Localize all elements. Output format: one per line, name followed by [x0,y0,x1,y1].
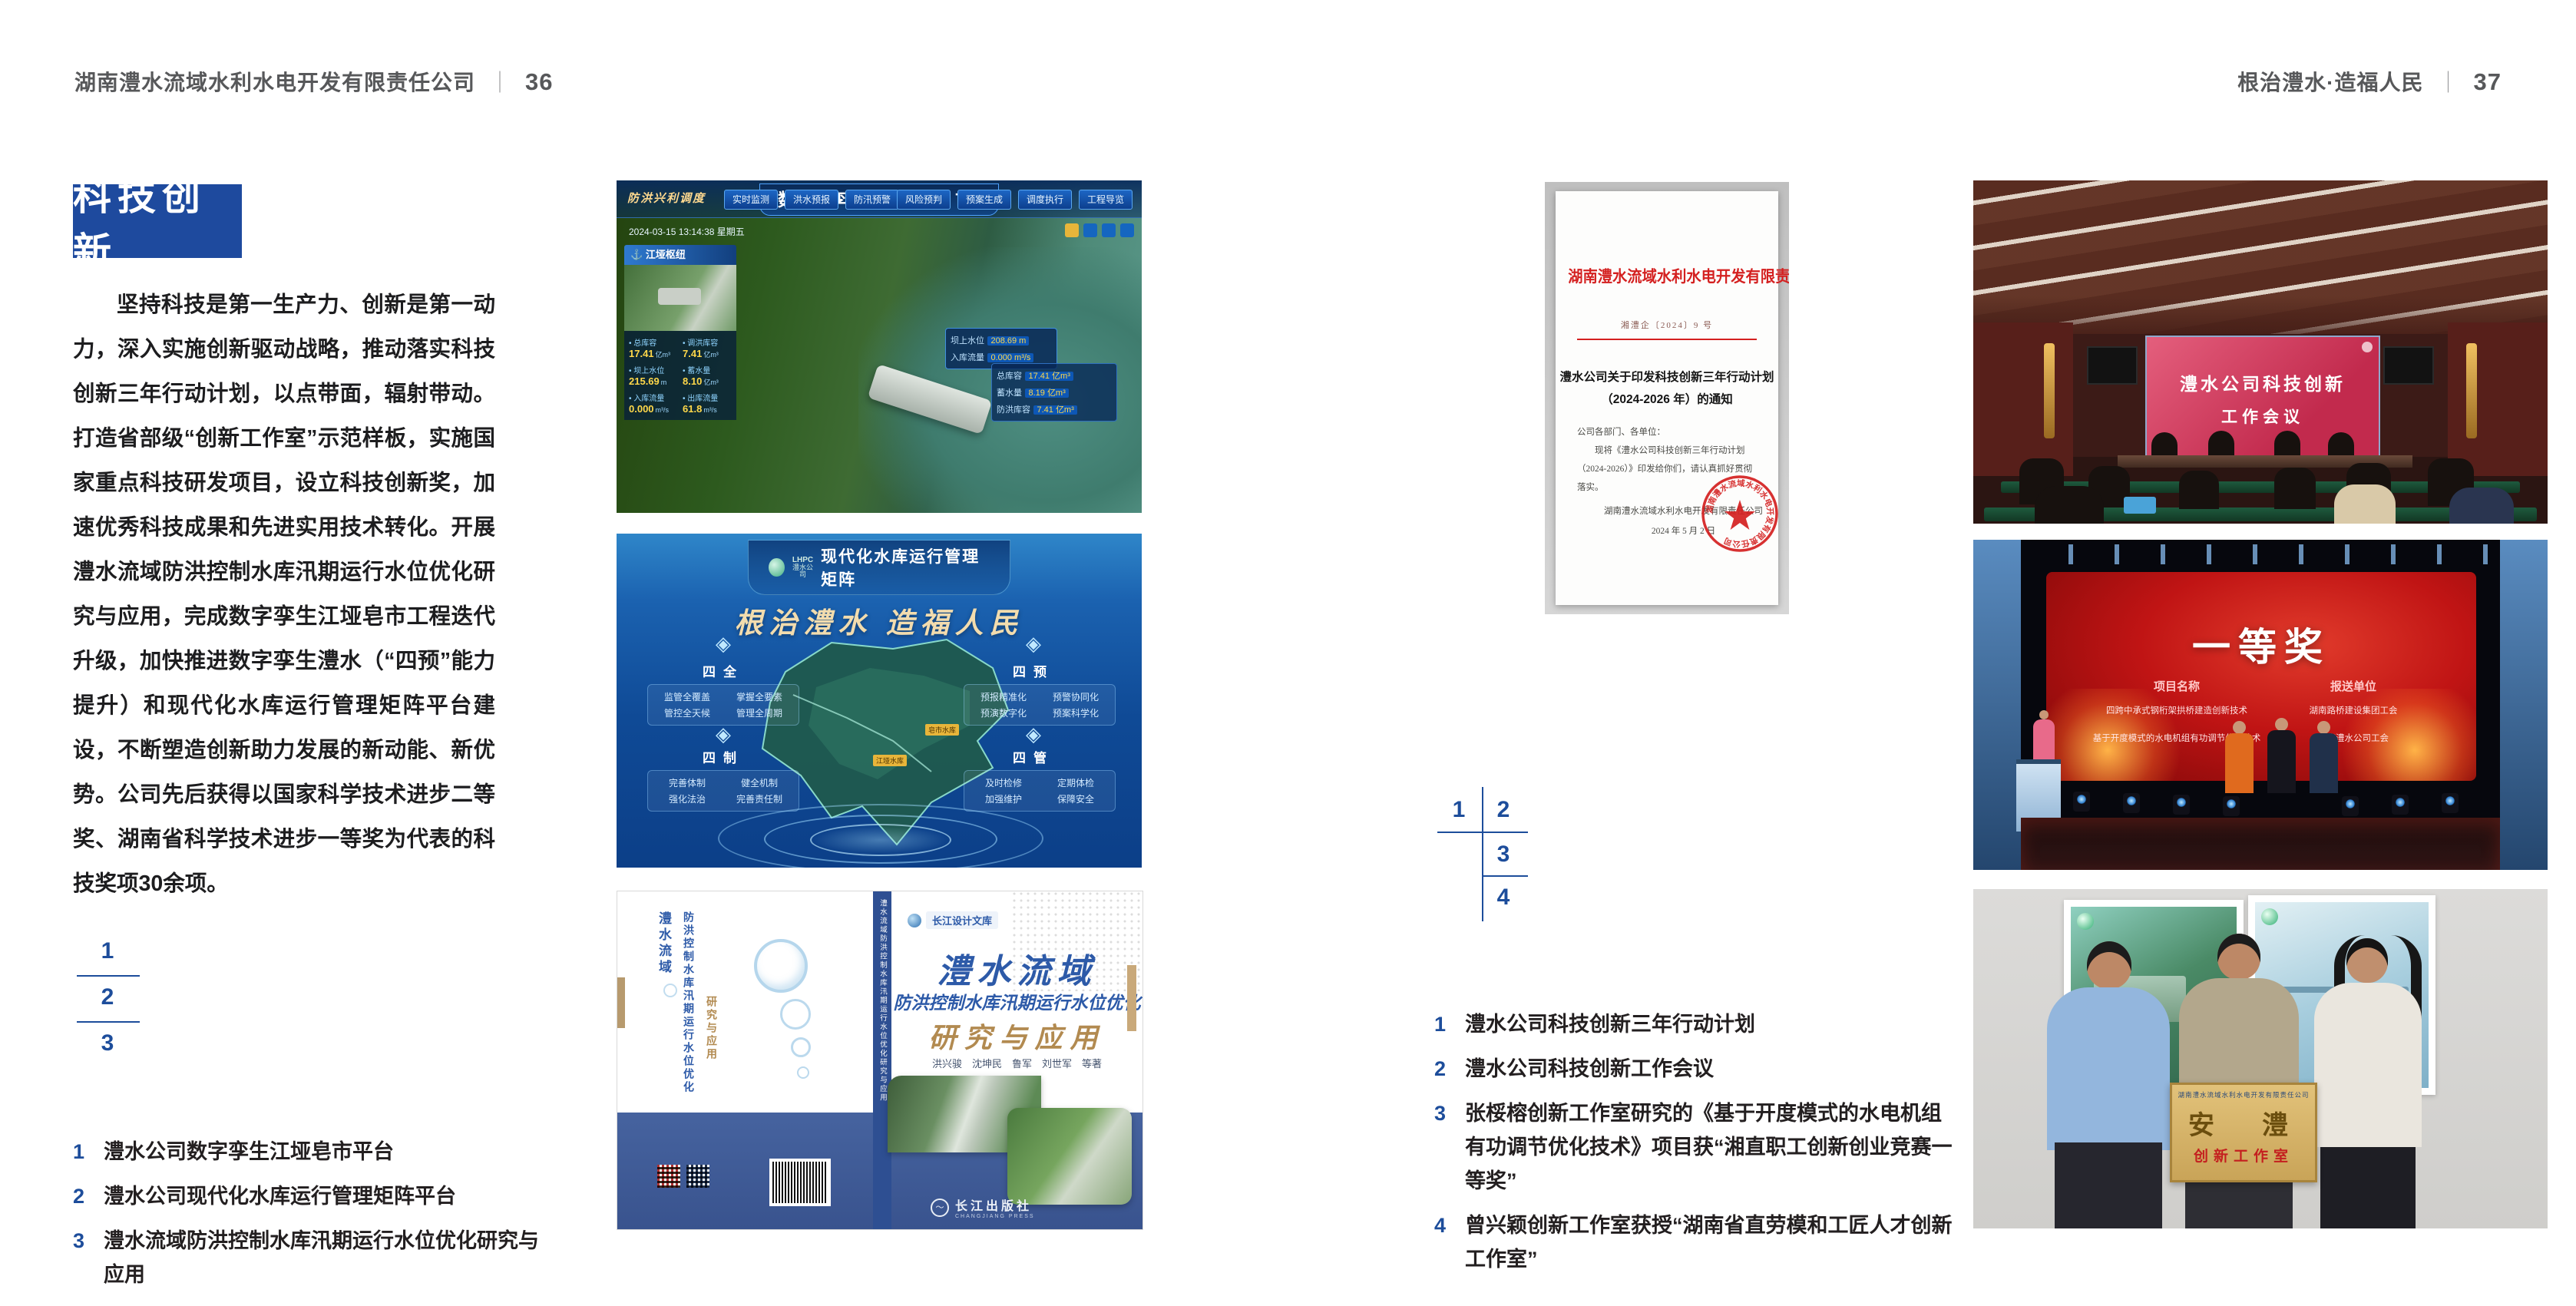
publisher-block: 〜 长江出版社 CHANGJIANG PRESS [931,1195,1035,1219]
photo-innovation-meeting: 澧水公司科技创新 工作会议 [1973,180,2548,524]
bubble-decoration [791,1037,811,1057]
panelist-silhouette [2208,431,2234,455]
map-label-jiangya: 江垭水库 [873,755,907,766]
document-sheet: 湖南澧水流域水利水电开发有限责任公司文件 湘澧企〔2024〕9 号 澧水公司关于… [1556,191,1778,605]
ripple-core [810,824,951,856]
document-salutation: 公司各部门、各单位： [1577,423,1760,441]
book-title: 澧水流域 [891,944,1143,993]
hub-stats-grid: • 总库容17.41亿m³ • 调洪库容7.41亿m³ • 坝上水位215.69… [624,331,736,420]
recipient-head [2233,721,2246,734]
audience-silhouette [2274,468,2316,509]
slogan: 根治澧水·造福人民 [2237,71,2423,94]
press-logo-icon [908,914,921,927]
right-running-head: 根治澧水·造福人民｜37 [2237,66,2502,97]
document-title: 澧水公司关于印发科技创新三年行动计划 （2024-2026 年）的通知 [1556,366,1778,412]
quad-item: 强化法治 [654,792,720,805]
quad-item: 预演数字化 [971,706,1037,719]
anchor-icon: ⚓ [630,249,646,260]
seal-star [1724,500,1755,530]
back-title-1: 澧水流域 [654,911,673,1142]
barcode [769,1159,831,1206]
panel-stat-label: 蓄水量 [997,388,1022,398]
section-badge: 科技创新 [73,184,242,258]
qr-code [686,1165,709,1188]
person-blue-shirt [2047,987,2170,1150]
panelist-silhouette [2328,432,2354,455]
map-label-zaoshi: 皂市水库 [925,724,959,736]
panel-stat-label: 防洪库容 [997,405,1030,415]
figure-index-4: 4 [1486,884,1520,911]
stage-light-fixture [2223,796,2240,816]
caption-number: 4 [1434,1208,1465,1276]
tooltip-label: 坝上水位 [951,336,984,346]
quad-item: 健全机制 [726,776,792,789]
quad-item: 掌握全要素 [726,690,792,703]
dashboard-tabs-right: 风险预判 预案生成 调度执行 工程导览 [897,190,1133,210]
tab-project-tour[interactable]: 工程导览 [1079,190,1133,210]
tooltip-label: 入库流量 [951,353,984,362]
left-running-head: 湖南澧水流域水利水电开发有限责任公司｜36 [74,66,554,97]
quad-item: 预案科学化 [1043,706,1109,719]
quad-item: 完善体制 [654,776,720,789]
plaque-title: 安 澧 [2172,1104,2315,1142]
caption-text: 曾兴颖创新工作室获授“湖南省直劳模和工匠人才创新工作室” [1465,1208,1964,1276]
caption-text: 澧水公司现代化水库运行管理矩阵平台 [104,1179,456,1213]
quadrant-icon: ◈ [673,632,773,656]
panel-stat-value: 7.41 亿m³ [1033,405,1076,415]
quad-item: 管理全周期 [726,706,792,719]
studio-plaque: 湖南澧水流域水利水电开发有限责任公司 安 澧 创新工作室 [2170,1083,2317,1182]
back-accent-bar [617,977,625,1028]
right-caption-list: 1 澧水公司科技创新三年行动计划 2 澧水公司科技创新工作会议 3 张桵榕创新工… [1434,1007,1964,1287]
back-title-2: 防洪控制水库汛期运行水位优化 [681,911,696,1142]
hub-panel: ⚓ 江垭枢纽 • 总库容17.41亿m³ • 调洪库容7.41亿m³ • 坝上水… [624,245,736,420]
screen-title-line1: 澧水公司科技创新 [2147,369,2379,395]
panel-stat-value: 8.19 亿m³ [1025,388,1068,398]
figure-policy-document: 湖南澧水流域水利水电开发有限责任公司文件 湘澧企〔2024〕9 号 澧水公司关于… [1545,182,1789,614]
recipient-head [2275,718,2288,731]
tab-flood-forecast[interactable]: 洪水预报 [785,190,838,210]
caption-number: 2 [73,1179,104,1213]
quadrant-title-siquan: 四全 [673,661,773,680]
user-icon[interactable] [1065,223,1079,237]
dashboard-tabs-left: 实时监测 洪水预报 防汛预警 [724,190,899,210]
tab-risk-judgement[interactable]: 风险预判 [897,190,951,210]
book-authors: 洪兴骏 沈坤民 鲁军 刘世军 等著 [891,1056,1143,1070]
document-number: 湘澧企〔2024〕9 号 [1556,319,1778,331]
quad-item: 加强维护 [971,792,1037,805]
stage-light-fixture [2442,793,2459,813]
lhpc-logo-text: LHPC 澧水公司 [791,557,815,578]
screen-title-line2: 工作会议 [2147,405,2379,428]
quad-item: 预报精准化 [971,690,1037,703]
caption-row: 2 澧水公司现代化水库运行管理矩阵平台 [73,1179,549,1213]
caption-number: 3 [1434,1096,1465,1198]
lhpc-logo-icon [2261,908,2278,925]
tab-flood-warning[interactable]: 防汛预警 [845,190,899,210]
page-number-left: 36 [525,68,553,95]
wall-lamp [2044,343,2055,438]
back-cover-title-block: 澧水流域 防洪控制水库汛期运行水位优化 研究与应用 [654,911,719,1142]
quadrant-title-siguan: 四管 [984,747,1083,766]
quad-item: 预警协同化 [1043,690,1109,703]
recipient-navy-shirt [2310,733,2338,793]
index-divider [1482,875,1528,877]
caption-row: 1 澧水公司科技创新三年行动计划 [1434,1007,1964,1041]
award-title: 一等奖 [2046,617,2476,672]
stage-floor [2021,818,2500,870]
page-number-right: 37 [2474,68,2502,95]
tab-plan-generation[interactable]: 预案生成 [957,190,1011,210]
book-subtitle-2: 研究与应用 [891,1016,1143,1056]
lhpc-logo-icon [769,558,785,577]
audience-silhouette-front [2449,488,2514,524]
series-badge: 长江设计文库 [908,911,998,929]
quad-item: 定期体检 [1043,776,1109,789]
quad-item: 及时检修 [971,776,1037,789]
stage-side-panel-left [1973,540,2021,870]
dashboard-mode-label: 防洪兴利调度 [627,190,706,206]
header-separator: ｜ [2438,71,2460,94]
stage-light-fixture [2123,793,2140,813]
panelist-silhouette [2151,432,2178,455]
side-wall-right [2448,322,2548,476]
audience-silhouette-front [2035,486,2104,524]
quad-item: 保障安全 [1043,792,1109,805]
quadrant-icon: ◈ [984,722,1083,746]
caption-number: 1 [1434,1007,1465,1041]
quadrant-title-sizhi: 四制 [673,747,773,766]
dam-photo-inset [624,265,736,331]
publisher-name-en: CHANGJIANG PRESS [955,1214,1035,1219]
matrix-header: LHPC 澧水公司 现代化水库运行管理矩阵 [748,540,1010,595]
series-name: 长江设计文库 [926,911,998,929]
official-seal: 湖南澧水流域水利水电开发有限责任公司 [1700,474,1780,554]
quadrant-box-siquan: 监管全覆盖 掌握全要素 管控全天候 管理全周期 [647,684,799,726]
document-header: 湖南澧水流域水利水电开发有限责任公司文件 [1568,263,1766,286]
front-accent-bar [1127,965,1136,1031]
tooltip-value: 208.69 m [987,336,1029,346]
figure-index-1: 1 [91,938,124,964]
caption-text: 澧水公司科技创新工作会议 [1465,1052,1714,1086]
quad-item: 监管全覆盖 [654,690,720,703]
award-unit-1: 湖南路桥建设集团工会 [2261,704,2445,716]
screen-logo-dot [2362,342,2373,352]
quadrant-icon: ◈ [984,632,1083,656]
cover-photo-hillside [1007,1108,1132,1205]
stat-item: • 出库流量61.8m³/s [683,392,732,415]
award-project-1: 四跨中承式钢桁架拱桥建造创新技术 [2069,704,2284,716]
host-figure [2033,719,2055,761]
bubble-decoration [663,984,677,997]
quadrant-title-siyu: 四预 [984,661,1083,680]
body-paragraph: 坚持科技是第一生产力、创新是第一动力，深入实施创新驱动战略，推动落实科技创新三年… [73,283,495,906]
figure-index-2: 2 [91,984,124,1010]
bubble-decoration [780,999,811,1030]
caption-text: 张桵榕创新工作室研究的《基于开度模式的水电机组有功调节优化技术》项目获“湘直职工… [1465,1096,1956,1198]
publisher-logo-icon: 〜 [931,1199,949,1217]
stat-item: • 调洪库容7.41亿m³ [683,336,732,359]
side-wall-left [1973,322,2073,476]
stat-item: • 蓄水量8.10亿m³ [683,364,732,387]
company-name: 湖南澧水流域水利水电开发有限责任公司 [74,71,475,94]
brochure-spread: 湖南澧水流域水利水电开发有限责任公司｜36 根治澧水·造福人民｜37 科技创新 … [0,0,2576,1306]
quad-item: 管控全天候 [654,706,720,719]
index-divider [1437,832,1528,833]
person-white-shirt [2314,983,2422,1147]
quadrant-icon: ◈ [673,722,773,746]
caption-number: 3 [73,1224,104,1291]
publisher-name: 长江出版社 [955,1195,1035,1214]
dashboard-toolbar-icons [1065,223,1134,237]
stat-item: • 总库容17.41亿m³ [629,336,678,359]
spine-title: 澧水流域防洪控制水库汛期运行水位优化研究与应用 [877,899,888,1103]
figure-index-1: 1 [1442,797,1476,823]
panel-stat-value: 17.41 亿m³ [1025,372,1073,381]
book-spine: 澧水流域防洪控制水库汛期运行水位优化研究与应用 [873,891,891,1229]
figure-index-2: 2 [1486,797,1520,823]
caption-text: 澧水公司科技创新三年行动计划 [1465,1007,1755,1041]
quad-item: 完善责任制 [726,792,792,805]
recipient-dark-suit [2267,730,2296,793]
person-dark-trousers [2055,1142,2162,1228]
caption-number: 2 [1434,1052,1465,1086]
person-head [2087,941,2131,989]
figure-index-3: 3 [1486,841,1520,868]
barcode-stripes [772,1162,828,1203]
award-col2-header: 报送单位 [2277,678,2430,694]
tab-realtime-monitoring[interactable]: 实时监测 [724,190,778,210]
tissue-box [2124,497,2156,514]
stage-light-fixture [2342,796,2359,816]
recipient-head [2317,721,2330,734]
index-divider [77,1021,140,1023]
wall-tv [2383,346,2434,385]
panelist-silhouette [2274,431,2300,455]
caption-number: 1 [73,1135,104,1169]
hub-panel-title: ⚓ 江垭枢纽 [624,245,736,265]
logo-cn: 澧水公司 [791,564,815,578]
person-head [2217,934,2260,980]
tooltip-value: 0.000 m³/s [987,353,1033,362]
locate-icon[interactable] [1102,223,1116,237]
plaque-header: 湖南澧水流域水利水电开发有限责任公司 [2172,1090,2315,1099]
led-screen: 一等奖 项目名称 报送单位 四跨中承式钢桁架拱桥建造创新技术 湖南路桥建设集团工… [2046,572,2476,781]
reservoir-stats-panel: 总库容 17.41 亿m³ 蓄水量 8.19 亿m³ 防洪库容 7.41 亿m³ [991,363,1117,422]
panel-stat-label: 总库容 [997,372,1022,381]
bubble-decoration [754,939,808,993]
left-caption-list: 1 澧水公司数字孪生江垭皂市平台 2 澧水公司现代化水库运行管理矩阵平台 3 澧… [73,1135,549,1302]
recipient-orange-jacket [2225,733,2254,793]
person-dark-trousers [2320,1147,2416,1228]
caption-row: 1 澧水公司数字孪生江垭皂市平台 [73,1135,549,1169]
host-head [2039,710,2049,719]
audience-silhouette [2179,471,2219,509]
index-divider [77,975,140,977]
stage-side-panel-right [2500,540,2548,870]
stage-light-fixture [2173,795,2190,815]
photo-studio-plaque: 湖南澧水流域水利水电开发有限责任公司 安 澧 创新工作室 [1973,889,2548,1228]
figure-book-cover: 澧水流域防洪控制水库汛期运行水位优化研究与应用 澧水流域 防洪控制水库汛期运行水… [617,891,1143,1230]
lhpc-logo-icon [2077,913,2094,930]
qr-code [657,1165,680,1188]
document-title-line2: （2024-2026 年）的通知 [1556,388,1778,411]
truss-lights [2027,544,2494,564]
photo-award-ceremony: 一等奖 项目名称 报送单位 四跨中承式钢桁架拱桥建造创新技术 湖南路桥建设集团工… [1973,540,2548,870]
matrix-title: 现代化水库运行管理矩阵 [821,544,990,590]
dashboard-timestamp: 2024-03-15 13:14:38 星期五 [629,225,745,238]
caption-text: 澧水公司数字孪生江垭皂市平台 [104,1135,394,1169]
alert-icon[interactable] [1120,223,1134,237]
figure-digital-twin-dashboard: 数字孪生江垭皂市 防洪兴利调度 实时监测 洪水预报 防汛预警 风险预判 预案生成… [617,180,1142,513]
stage-light-fixture [2392,795,2409,815]
quadrant-box-sizhi: 完善体制 健全机制 强化法治 完善责任制 [647,770,799,812]
caption-text: 澧水流域防洪控制水库汛期运行水位优化研究与应用 [104,1224,549,1291]
stat-item: • 入库流量0.000m³/s [629,392,678,415]
plaque-subtitle: 创新工作室 [2172,1145,2315,1165]
caption-row: 3 张桵榕创新工作室研究的《基于开度模式的水电机组有功调节优化技术》项目获“湘直… [1434,1096,1964,1198]
quadrant-box-siguan: 及时检修 定期体检 加强维护 保障安全 [964,770,1116,812]
document-rule [1577,339,1757,340]
tab-dispatch-execution[interactable]: 调度执行 [1018,190,1072,210]
caption-row: 3 澧水流域防洪控制水库汛期运行水位优化研究与应用 [73,1224,549,1291]
wall-lamp [2466,343,2477,438]
quadrant-box-siyu: 预报精准化 预警协同化 预演数字化 预案科学化 [964,684,1116,726]
inset-dam [658,288,701,305]
figure-index-3: 3 [91,1030,124,1056]
layers-icon[interactable] [1083,223,1097,237]
index-vertical-line [1482,787,1483,921]
stat-item: • 坝上水位215.69m [629,364,678,387]
header-separator: ｜ [489,71,511,94]
publisher-text: 长江出版社 CHANGJIANG PRESS [955,1195,1035,1219]
document-title-line1: 澧水公司关于印发科技创新三年行动计划 [1556,366,1778,388]
caption-row: 2 澧水公司科技创新工作会议 [1434,1052,1964,1086]
book-subtitle: 防洪控制水库汛期运行水位优化 [891,988,1143,1014]
hub-panel-title-text: 江垭枢纽 [646,249,686,260]
audience-silhouette-front [2334,484,2396,524]
back-title-3: 研究与应用 [704,996,719,1142]
award-col1-header: 项目名称 [2092,678,2261,694]
figure-matrix-platform: LHPC 澧水公司 现代化水库运行管理矩阵 根治澧水 造福人民 皂市水库 江垭水… [617,534,1142,868]
bubble-decoration [797,1066,809,1079]
caption-row: 4 曾兴颖创新工作室获授“湖南省直劳模和工匠人才创新工作室” [1434,1208,1964,1276]
wall-tv [2087,346,2138,385]
stage-light-fixture [2073,792,2090,812]
